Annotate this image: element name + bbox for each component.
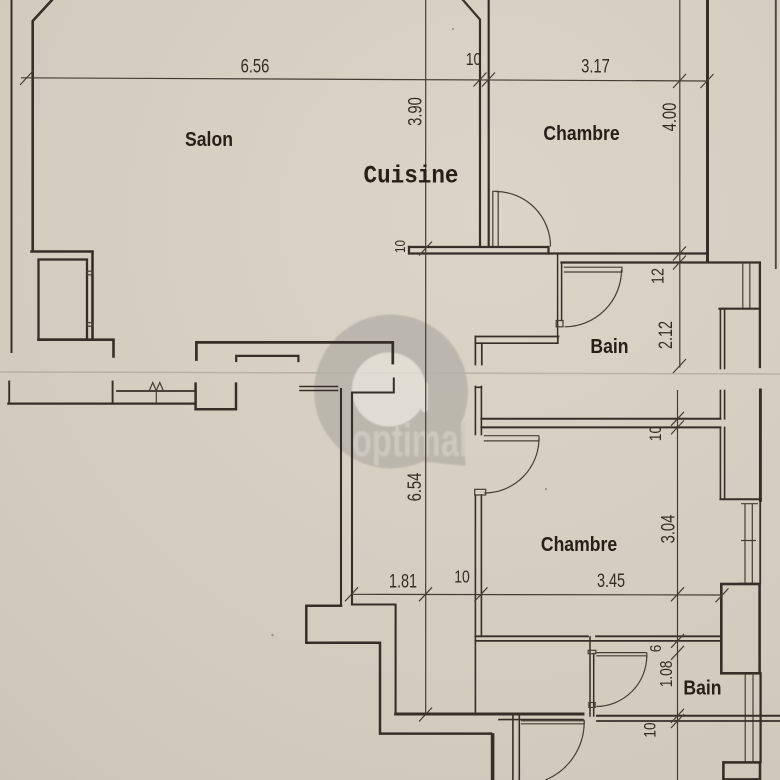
svg-text:Salon: Salon <box>185 128 233 150</box>
svg-text:12: 12 <box>648 268 668 284</box>
svg-text:4.00: 4.00 <box>658 103 681 132</box>
svg-text:6.54: 6.54 <box>403 472 426 501</box>
svg-text:3.04: 3.04 <box>656 514 679 543</box>
svg-text:6.56: 6.56 <box>241 54 270 77</box>
svg-text:Chambre: Chambre <box>541 533 617 555</box>
svg-text:10: 10 <box>647 426 666 441</box>
svg-text:Bain: Bain <box>683 676 721 698</box>
svg-text:Cuisine: Cuisine <box>364 162 459 191</box>
svg-text:optimal: optimal <box>352 414 468 466</box>
svg-text:3.45: 3.45 <box>597 570 625 591</box>
svg-text:6: 6 <box>648 645 665 653</box>
svg-text:10: 10 <box>641 722 660 737</box>
svg-text:3.17: 3.17 <box>581 54 610 77</box>
svg-text:1.81: 1.81 <box>389 571 417 592</box>
svg-text:1.08: 1.08 <box>657 661 676 688</box>
svg-text:3.90: 3.90 <box>403 97 426 126</box>
svg-text:10: 10 <box>454 568 470 587</box>
svg-text:Bain: Bain <box>590 335 628 357</box>
svg-text:10: 10 <box>466 51 482 70</box>
svg-text:2.12: 2.12 <box>655 321 676 349</box>
svg-text:Chambre: Chambre <box>543 122 619 144</box>
svg-text:10: 10 <box>392 240 409 253</box>
